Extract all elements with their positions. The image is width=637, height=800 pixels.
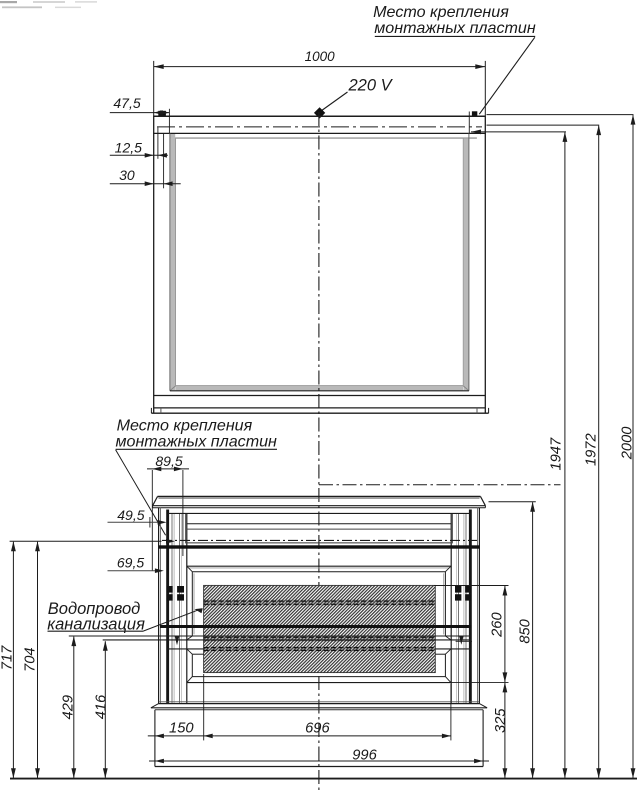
svg-text:12,5: 12,5 — [115, 139, 142, 155]
svg-text:416: 416 — [93, 694, 109, 719]
svg-text:325: 325 — [493, 708, 509, 733]
svg-text:696: 696 — [305, 720, 330, 736]
svg-text:220 V: 220 V — [348, 76, 394, 94]
svg-text:1972: 1972 — [584, 433, 600, 466]
svg-text:1000: 1000 — [305, 49, 336, 64]
svg-text:монтажных пластин: монтажных пластин — [115, 433, 277, 451]
svg-text:2000: 2000 — [620, 426, 636, 461]
svg-text:канализация: канализация — [47, 615, 145, 633]
svg-text:69,5: 69,5 — [117, 555, 144, 571]
svg-text:150: 150 — [169, 720, 194, 736]
svg-text:429: 429 — [60, 695, 76, 720]
svg-text:260: 260 — [489, 612, 505, 638]
svg-text:47,5: 47,5 — [113, 95, 140, 111]
svg-text:89,5: 89,5 — [155, 453, 182, 469]
svg-text:49,5: 49,5 — [117, 507, 144, 523]
svg-text:704: 704 — [22, 647, 38, 672]
svg-text:850: 850 — [518, 618, 534, 643]
svg-text:монтажных пластин: монтажных пластин — [374, 19, 536, 37]
svg-text:30: 30 — [119, 167, 135, 183]
svg-text:717: 717 — [0, 645, 15, 670]
svg-text:1947: 1947 — [549, 437, 565, 471]
